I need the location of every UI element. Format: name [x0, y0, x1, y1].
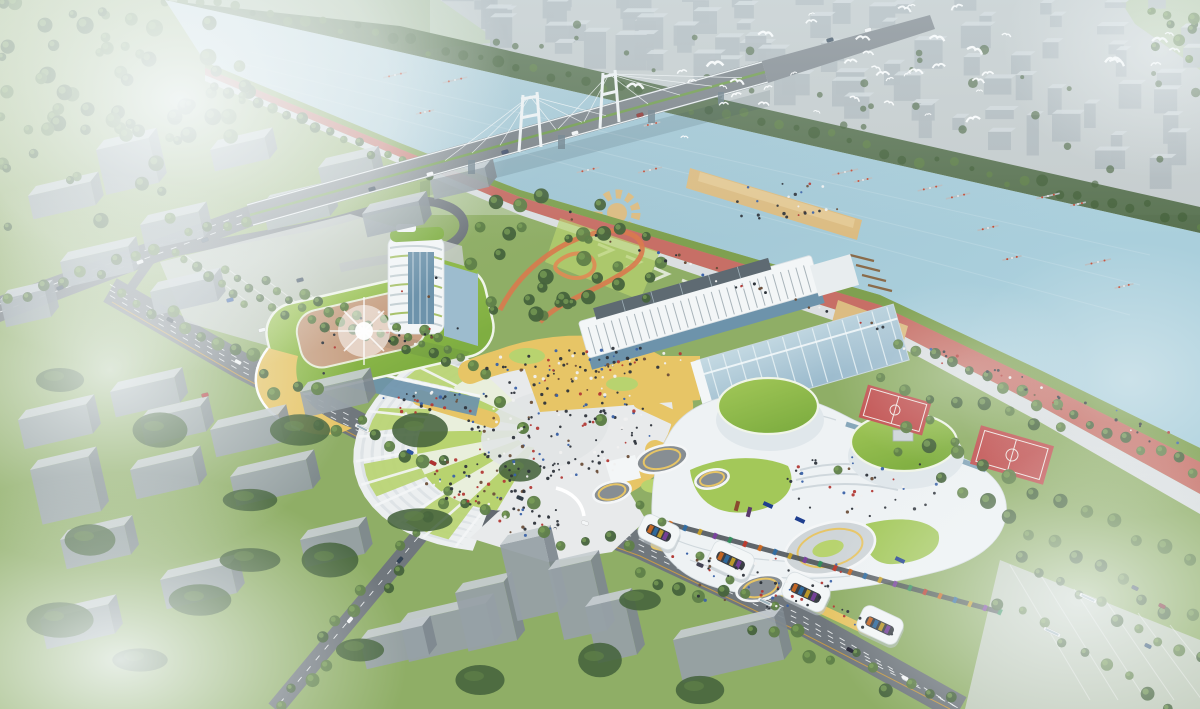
tree-highlight: [230, 291, 234, 295]
tree-highlight: [96, 49, 100, 53]
tree-highlight: [283, 112, 287, 116]
rower: [1118, 286, 1120, 288]
person: [604, 365, 606, 367]
person: [556, 410, 558, 412]
tree-highlight: [1126, 672, 1130, 676]
rower: [429, 110, 431, 112]
person: [628, 370, 631, 373]
person: [1084, 401, 1087, 404]
person: [736, 200, 739, 203]
tree-highlight: [578, 253, 585, 260]
person: [869, 515, 871, 517]
person: [697, 595, 700, 598]
person: [566, 363, 568, 365]
person: [851, 508, 853, 510]
person: [538, 515, 541, 518]
tree-highlight: [1050, 536, 1056, 542]
person: [476, 486, 478, 488]
person: [611, 347, 614, 350]
tree-highlight: [223, 111, 230, 118]
tree-highlight: [1136, 625, 1140, 629]
person: [467, 419, 470, 422]
rower: [643, 170, 645, 172]
person: [543, 402, 546, 405]
person: [547, 374, 550, 377]
tree-highlight: [79, 19, 87, 27]
tree-highlight: [1029, 420, 1034, 425]
person: [635, 358, 638, 361]
person: [528, 418, 530, 420]
rower: [651, 123, 653, 125]
person: [811, 584, 814, 587]
person: [558, 469, 560, 471]
person: [643, 357, 646, 360]
tree-highlight: [469, 362, 474, 367]
tree-highlight: [341, 137, 344, 140]
person: [601, 402, 604, 405]
tree-cluster-light: [684, 681, 704, 691]
tree-highlight: [1190, 14, 1195, 19]
far-bank-tree: [478, 55, 483, 60]
person: [871, 490, 873, 492]
tree-cluster-light: [234, 551, 254, 561]
rower: [982, 228, 984, 230]
person: [603, 393, 606, 396]
far-bank-tree: [1073, 191, 1082, 200]
person: [534, 365, 536, 367]
person: [485, 367, 488, 370]
far-bank-tree: [338, 29, 343, 34]
person: [475, 500, 477, 502]
person: [469, 410, 472, 413]
person: [517, 509, 520, 512]
person: [543, 466, 546, 469]
person: [584, 414, 587, 417]
person: [613, 355, 615, 357]
city-tree: [652, 68, 656, 72]
person: [846, 610, 849, 613]
tree-highlight: [1175, 36, 1180, 41]
tree-highlight: [1082, 649, 1086, 653]
tree-highlight: [434, 334, 438, 338]
person: [458, 493, 461, 496]
person: [848, 467, 851, 470]
person: [552, 470, 555, 473]
person: [924, 503, 927, 506]
tree-highlight: [515, 200, 521, 206]
rower: [1090, 263, 1092, 265]
person: [696, 559, 699, 562]
person: [795, 600, 797, 602]
person: [680, 359, 682, 361]
far-bank-tree: [1125, 204, 1134, 213]
far-bank-tree: [267, 10, 275, 18]
tree-highlight: [248, 350, 254, 356]
tree-highlight: [181, 257, 184, 260]
person: [708, 565, 711, 568]
person: [860, 495, 862, 497]
person: [477, 426, 480, 429]
tree-highlight: [927, 396, 931, 400]
tree-highlight: [625, 542, 630, 547]
person: [526, 475, 528, 477]
person: [656, 366, 659, 369]
tree-highlight: [40, 281, 45, 286]
tree-highlight: [203, 223, 208, 228]
person: [499, 497, 502, 500]
person: [454, 394, 456, 396]
person: [436, 469, 439, 472]
person: [532, 383, 535, 386]
person: [754, 562, 757, 565]
far-bank-tree: [388, 33, 399, 44]
person: [664, 362, 666, 364]
city-tree: [512, 43, 519, 50]
person: [624, 372, 626, 374]
tree-highlight: [1017, 552, 1022, 557]
person: [559, 357, 562, 360]
person: [1136, 431, 1138, 433]
person: [657, 251, 660, 254]
person: [1116, 410, 1118, 412]
tree-highlight: [1103, 429, 1108, 434]
tree-highlight: [349, 606, 355, 612]
tree-highlight: [894, 341, 899, 346]
person: [556, 523, 559, 526]
person: [764, 291, 767, 294]
rower: [593, 168, 595, 170]
person: [615, 351, 618, 354]
tree-highlight: [530, 308, 537, 315]
tree-highlight: [331, 617, 336, 622]
person: [446, 461, 449, 464]
person: [498, 454, 501, 457]
person: [549, 528, 551, 530]
person: [617, 360, 620, 363]
tree-highlight: [927, 417, 931, 421]
person: [496, 469, 498, 471]
rower: [844, 171, 846, 173]
person: [689, 263, 692, 266]
rower: [1041, 196, 1043, 198]
person: [492, 428, 495, 431]
tree-highlight: [978, 461, 984, 467]
tree-highlight: [1006, 408, 1010, 412]
person: [559, 451, 562, 454]
city-tree: [860, 106, 866, 112]
person: [780, 301, 782, 303]
person: [592, 421, 595, 424]
person: [412, 395, 415, 398]
person: [598, 392, 601, 395]
person: [557, 463, 559, 465]
person: [464, 406, 467, 409]
person: [603, 457, 605, 459]
person: [902, 485, 905, 488]
tree-highlight: [540, 271, 547, 278]
far-bank-tree: [1020, 176, 1030, 186]
tree-highlight: [908, 680, 913, 685]
person: [416, 399, 419, 402]
person: [1176, 442, 1179, 445]
person: [852, 493, 855, 496]
person: [466, 475, 468, 477]
person: [1167, 431, 1170, 434]
tree-highlight: [197, 333, 201, 337]
tree-highlight: [222, 266, 226, 270]
person: [471, 428, 474, 431]
person: [510, 474, 513, 477]
tree-highlight: [947, 693, 952, 698]
tree-highlight: [1154, 639, 1158, 643]
person: [756, 200, 758, 202]
tree-highlight: [243, 218, 248, 223]
person: [821, 582, 824, 585]
tree-highlight: [959, 489, 964, 494]
person: [634, 361, 636, 363]
tree-highlight: [481, 505, 486, 510]
tree-highlight: [1004, 511, 1011, 518]
tree-highlight: [299, 304, 303, 308]
person: [512, 507, 515, 510]
tree-highlight: [558, 294, 564, 300]
rower: [655, 168, 657, 170]
person: [620, 426, 623, 429]
tree-highlight: [127, 120, 132, 125]
tree-highlight: [385, 584, 390, 589]
person: [701, 274, 704, 277]
person: [430, 336, 433, 339]
person: [427, 295, 430, 298]
person: [555, 394, 558, 397]
person: [406, 393, 408, 395]
person: [462, 493, 465, 496]
tree-highlight: [395, 567, 400, 572]
tree-highlight: [274, 288, 278, 292]
person: [485, 395, 488, 398]
tree-highlight: [212, 67, 217, 72]
person: [538, 412, 540, 414]
person: [524, 534, 527, 537]
rower: [1128, 284, 1130, 286]
person: [919, 463, 921, 465]
tree-highlight: [442, 358, 447, 363]
person: [521, 445, 524, 448]
person: [533, 375, 536, 378]
person: [601, 450, 604, 453]
rower: [1073, 204, 1075, 206]
person: [594, 376, 597, 379]
person: [596, 471, 598, 473]
person: [504, 465, 507, 468]
person: [514, 489, 517, 492]
tree-highlight: [912, 347, 917, 352]
tree-highlight: [1057, 424, 1061, 428]
person: [636, 427, 638, 429]
rower: [857, 180, 859, 182]
person: [521, 369, 523, 371]
city-tree: [860, 79, 868, 87]
tree-highlight: [937, 474, 942, 479]
far-bank-tree: [372, 29, 379, 36]
person: [439, 480, 441, 482]
city-tree: [917, 58, 923, 64]
tree-highlight: [466, 259, 472, 265]
tree-highlight: [895, 449, 899, 453]
tree-highlight: [948, 358, 953, 363]
tree-cluster-light: [464, 671, 484, 681]
person: [542, 458, 545, 461]
person: [808, 182, 811, 185]
tree-highlight: [149, 245, 154, 250]
far-bank-tree: [757, 118, 765, 126]
tree-highlight: [1098, 598, 1103, 603]
rower: [929, 187, 931, 189]
tree-highlight: [770, 628, 775, 633]
person: [893, 478, 895, 480]
city-tree: [1020, 75, 1024, 79]
person: [479, 448, 481, 450]
tree-highlight: [121, 130, 127, 136]
tree-highlight: [570, 300, 574, 304]
person: [662, 352, 665, 355]
person: [794, 193, 797, 196]
person: [512, 436, 515, 439]
tree-highlight: [150, 157, 157, 164]
person: [994, 369, 996, 371]
person: [586, 389, 588, 391]
person: [806, 604, 809, 607]
person: [704, 599, 707, 602]
person: [846, 510, 849, 513]
tree-highlight: [421, 326, 426, 331]
person: [509, 454, 512, 457]
tree-highlight: [877, 374, 881, 378]
tree-highlight: [1188, 610, 1194, 616]
far-bank-tree: [441, 47, 450, 56]
city-tree: [912, 102, 920, 110]
person: [510, 490, 513, 493]
tree-highlight: [697, 553, 701, 557]
person: [1025, 388, 1028, 391]
person: [761, 590, 764, 593]
person: [508, 479, 511, 482]
person: [574, 458, 576, 460]
person: [625, 442, 627, 444]
tree-highlight: [211, 83, 215, 87]
tree-highlight: [322, 661, 327, 666]
person: [454, 458, 457, 461]
tree-highlight: [482, 370, 487, 375]
far-bank-tree: [1091, 200, 1099, 208]
tree-highlight: [315, 298, 319, 302]
rower: [987, 227, 989, 229]
person: [321, 341, 324, 344]
tree-cluster-light: [284, 421, 304, 431]
tree-highlight: [123, 75, 129, 81]
person: [404, 340, 407, 343]
rower: [1104, 259, 1106, 261]
rower: [1006, 258, 1008, 260]
tree-highlight: [122, 43, 126, 47]
rower: [867, 178, 869, 180]
far-bank-tree: [879, 149, 889, 159]
tree-cluster-light: [74, 531, 94, 541]
person: [629, 395, 631, 397]
far-bank-tree: [283, 17, 292, 26]
rower: [581, 170, 583, 172]
plaza-tree-light: [496, 398, 502, 404]
tree-highlight: [654, 581, 659, 586]
tree-highlight: [341, 304, 345, 308]
person: [627, 455, 630, 458]
rower: [992, 226, 994, 228]
tree-highlight: [556, 300, 560, 304]
tree-highlight: [405, 334, 409, 338]
person: [523, 528, 526, 531]
city-tree: [1064, 143, 1071, 150]
person: [568, 349, 570, 351]
person: [801, 480, 803, 482]
tree-highlight: [563, 299, 568, 304]
person: [504, 515, 507, 518]
person: [547, 359, 550, 362]
person: [479, 489, 481, 491]
tree-highlight: [440, 456, 445, 461]
rower: [647, 124, 649, 126]
city-tree: [916, 50, 923, 57]
tree-highlight: [368, 152, 372, 156]
tree-highlight: [1054, 400, 1059, 405]
person: [495, 420, 498, 423]
person: [445, 497, 448, 500]
person: [860, 322, 862, 324]
person: [463, 471, 466, 474]
person: [509, 417, 512, 420]
tree-highlight: [269, 104, 274, 109]
person: [814, 461, 817, 464]
tree-highlight: [656, 258, 661, 263]
person: [556, 433, 559, 436]
rect: [558, 135, 565, 149]
person: [598, 461, 601, 464]
rower: [1047, 195, 1049, 197]
person: [567, 461, 570, 464]
tree-highlight: [54, 104, 59, 109]
person: [506, 369, 508, 371]
tree-highlight: [148, 22, 156, 30]
tree-highlight: [518, 224, 522, 228]
tree-highlight: [1018, 386, 1023, 391]
tree-highlight: [213, 339, 219, 345]
person: [582, 425, 584, 427]
tree-highlight: [583, 292, 589, 298]
person: [612, 469, 614, 471]
person: [716, 578, 718, 580]
tree-highlight: [869, 664, 874, 669]
person: [435, 397, 437, 399]
person: [558, 378, 560, 380]
person: [833, 605, 835, 607]
person: [612, 415, 615, 418]
tree-highlight: [557, 542, 561, 546]
person: [523, 426, 525, 428]
city-tree: [624, 50, 629, 55]
tree-highlight: [1096, 561, 1102, 567]
rower: [851, 169, 853, 171]
person: [439, 395, 442, 398]
person: [512, 460, 515, 463]
